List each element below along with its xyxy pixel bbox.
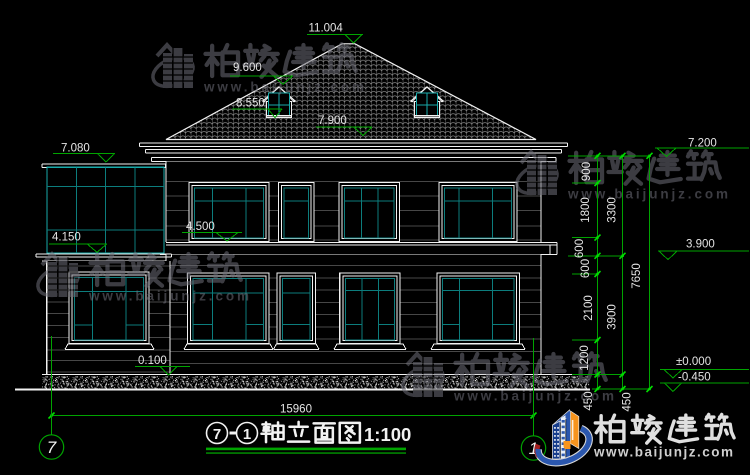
- svg-text:4.150: 4.150: [52, 232, 81, 244]
- svg-text:7.080: 7.080: [61, 143, 90, 155]
- svg-text:600: 600: [580, 259, 592, 278]
- svg-text:7: 7: [213, 426, 221, 443]
- svg-text:0.100: 0.100: [138, 355, 167, 367]
- svg-text:900: 900: [581, 162, 593, 181]
- svg-text:±0.000: ±0.000: [676, 356, 711, 368]
- svg-text:11.004: 11.004: [309, 23, 344, 35]
- svg-text:7: 7: [47, 438, 57, 457]
- svg-text:2100: 2100: [583, 295, 595, 321]
- svg-text:1:100: 1:100: [364, 424, 411, 445]
- svg-text:www.baijunjz.com: www.baijunjz.com: [593, 445, 735, 460]
- svg-text:3900: 3900: [607, 304, 619, 330]
- svg-text:1800: 1800: [580, 197, 592, 223]
- svg-text:450: 450: [583, 391, 595, 410]
- svg-text:8.550: 8.550: [236, 98, 265, 110]
- svg-text:4.500: 4.500: [186, 221, 215, 233]
- svg-text:3.900: 3.900: [686, 239, 715, 251]
- svg-text:9.600: 9.600: [233, 62, 262, 74]
- svg-text:450: 450: [622, 392, 634, 411]
- svg-text:15960: 15960: [280, 404, 312, 416]
- svg-text:1200: 1200: [579, 345, 591, 371]
- svg-text:1: 1: [243, 426, 251, 443]
- svg-text:7650: 7650: [631, 263, 643, 289]
- svg-text:3300: 3300: [607, 197, 619, 223]
- svg-text:600: 600: [574, 239, 586, 258]
- svg-text:-0.450: -0.450: [678, 372, 711, 384]
- svg-text:7.900: 7.900: [318, 115, 347, 127]
